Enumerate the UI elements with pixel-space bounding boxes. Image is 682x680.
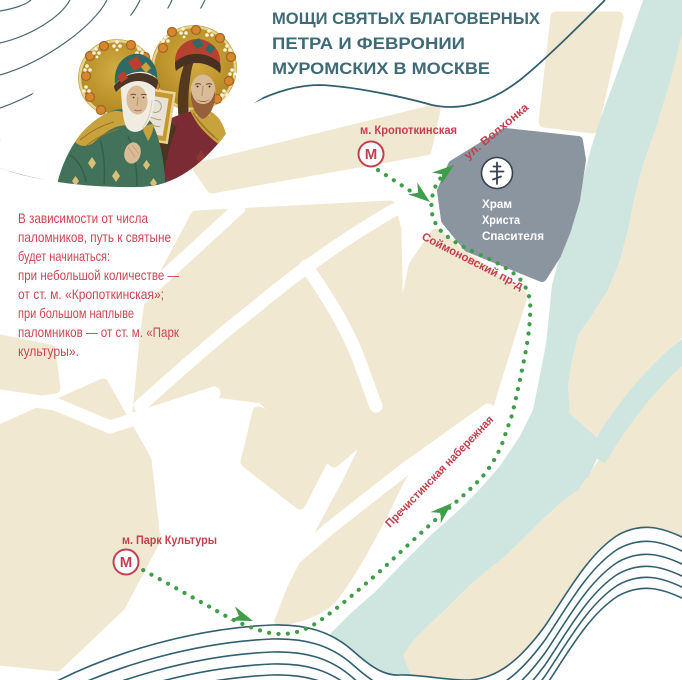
svg-text:от ст. м. «Кропоткинская»;: от ст. м. «Кропоткинская»; [18,286,164,302]
svg-text:при небольшой количестве —: при небольшой количестве — [18,267,179,283]
svg-text:Христа: Христа [482,215,521,227]
svg-text:М: М [120,554,133,571]
svg-text:Спасителя: Спасителя [482,231,544,243]
svg-text:ПЕТРА И ФЕВРОНИИ: ПЕТРА И ФЕВРОНИИ [272,34,465,53]
svg-text:м. Кропоткинская: м. Кропоткинская [360,123,457,137]
svg-text:м. Парк Культуры: м. Парк Культуры [122,533,217,547]
svg-text:МУРОМСКИХ В МОСКВЕ: МУРОМСКИХ В МОСКВЕ [272,59,490,78]
svg-text:при большом наплыве: при большом наплыве [18,305,134,321]
svg-text:паломников, путь к святыне: паломников, путь к святыне [18,229,171,245]
svg-text:будет начинаться:: будет начинаться: [18,248,110,264]
svg-text:культуры».: культуры». [18,343,79,359]
svg-text:МОЩИ СВЯТЫХ БЛАГОВЕРНЫХ: МОЩИ СВЯТЫХ БЛАГОВЕРНЫХ [272,9,541,28]
svg-text:М: М [365,146,378,163]
svg-text:В зависимости от числа: В зависимости от числа [18,210,148,226]
svg-text:Храм: Храм [482,199,512,211]
svg-text:паломников — от ст. м. «Парк: паломников — от ст. м. «Парк [18,324,180,340]
